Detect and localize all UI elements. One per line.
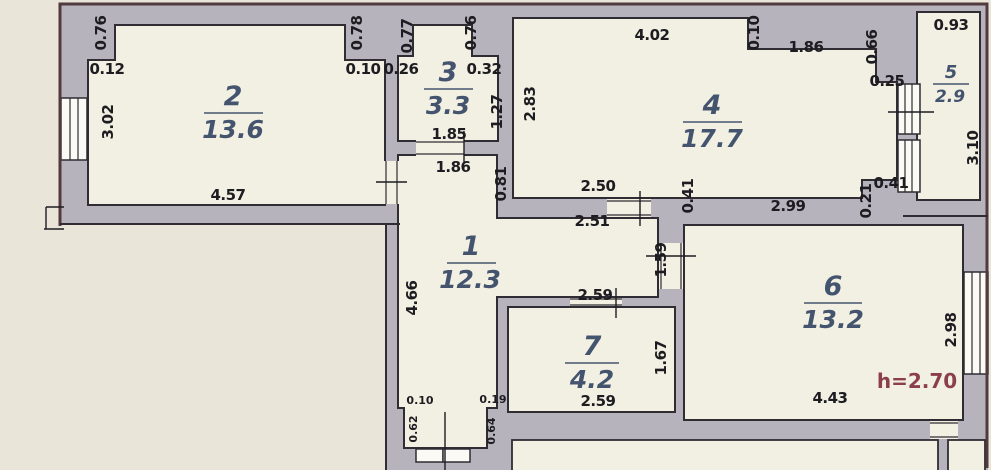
room-6-number: 6 [824,271,843,302]
room-3-number: 3 [439,57,458,88]
dim-label: 2.98 [942,312,960,347]
room-2-number: 2 [224,81,243,112]
room-7-number: 7 [583,331,602,362]
dim-label: 1.67 [652,340,670,375]
floor-plan-drawing: 1 12.3 2 13.6 3 3.3 4 17.7 5 2.9 6 13.2 … [0,0,991,470]
dim-label: 0.10 [345,60,380,78]
room-1-number: 1 [462,231,481,262]
room-4-number: 4 [702,90,722,121]
dim-label: 0.10 [406,394,433,407]
dim-label: 1.86 [788,38,823,56]
ceiling-height-label: h=2.70 [877,369,957,393]
dim-label: 3.10 [964,130,982,165]
dim-label: 1.86 [435,158,470,176]
dim-label: 1.59 [652,242,670,277]
dim-label: 2.59 [580,392,615,410]
dim-label: 0.41 [873,174,908,192]
dim-label: 2.59 [577,286,612,304]
dim-label: 0.12 [89,60,124,78]
room-1-area: 12.3 [439,265,501,294]
dim-label: 0.77 [398,18,416,53]
room-interiors [88,12,985,470]
window-room4-room5-upper [898,84,920,134]
dim-label: 4.02 [634,26,669,44]
dim-label: 0.26 [383,60,418,78]
dim-label: 0.25 [869,72,904,90]
room-5-number: 5 [945,62,958,83]
floor-plan-canvas: 1 12.3 2 13.6 3 3.3 4 17.7 5 2.9 6 13.2 … [0,0,991,470]
dim-label: 4.43 [812,389,847,407]
dim-label: 0.19 [479,393,506,406]
dim-label: 0.66 [863,29,881,64]
dim-label: 4.57 [210,186,245,204]
adjacent-space-bottom [512,440,938,470]
balcony-bottom-right [948,440,985,470]
dim-label: 1.85 [431,125,466,143]
dim-label: 2.99 [770,197,805,215]
room-5-area: 2.9 [935,87,965,107]
door-room6-balcony [930,421,958,439]
dim-label: 2.83 [521,86,539,121]
room-4-area: 17.7 [681,124,743,153]
dim-label: 3.02 [99,104,117,139]
dim-label: 0.41 [679,178,697,213]
dim-label: 0.21 [857,183,875,218]
dim-label: 0.64 [485,417,498,444]
entry-door-threshold [416,449,470,462]
room-2-area: 13.6 [202,115,264,144]
room-6-area: 13.2 [802,305,864,334]
dim-label: 2.50 [580,177,615,195]
room-7-area: 4.2 [569,365,614,394]
dim-label: 0.32 [466,60,501,78]
dim-label: 0.10 [745,15,763,50]
dim-label: 0.76 [92,15,110,50]
dim-label: 0.76 [462,15,480,50]
dim-label: 0.62 [407,415,420,442]
dim-label: 0.93 [933,16,968,34]
dim-label: 2.51 [574,212,609,230]
dim-label: 1.27 [488,94,506,129]
window-room2-left [61,98,87,160]
room-3-area: 3.3 [426,91,470,120]
dim-label: 0.78 [348,15,366,50]
dim-label: 0.81 [492,166,510,201]
dim-label: 4.66 [403,280,421,315]
door-room4-hall [607,199,651,217]
window-room6-right [964,272,988,374]
